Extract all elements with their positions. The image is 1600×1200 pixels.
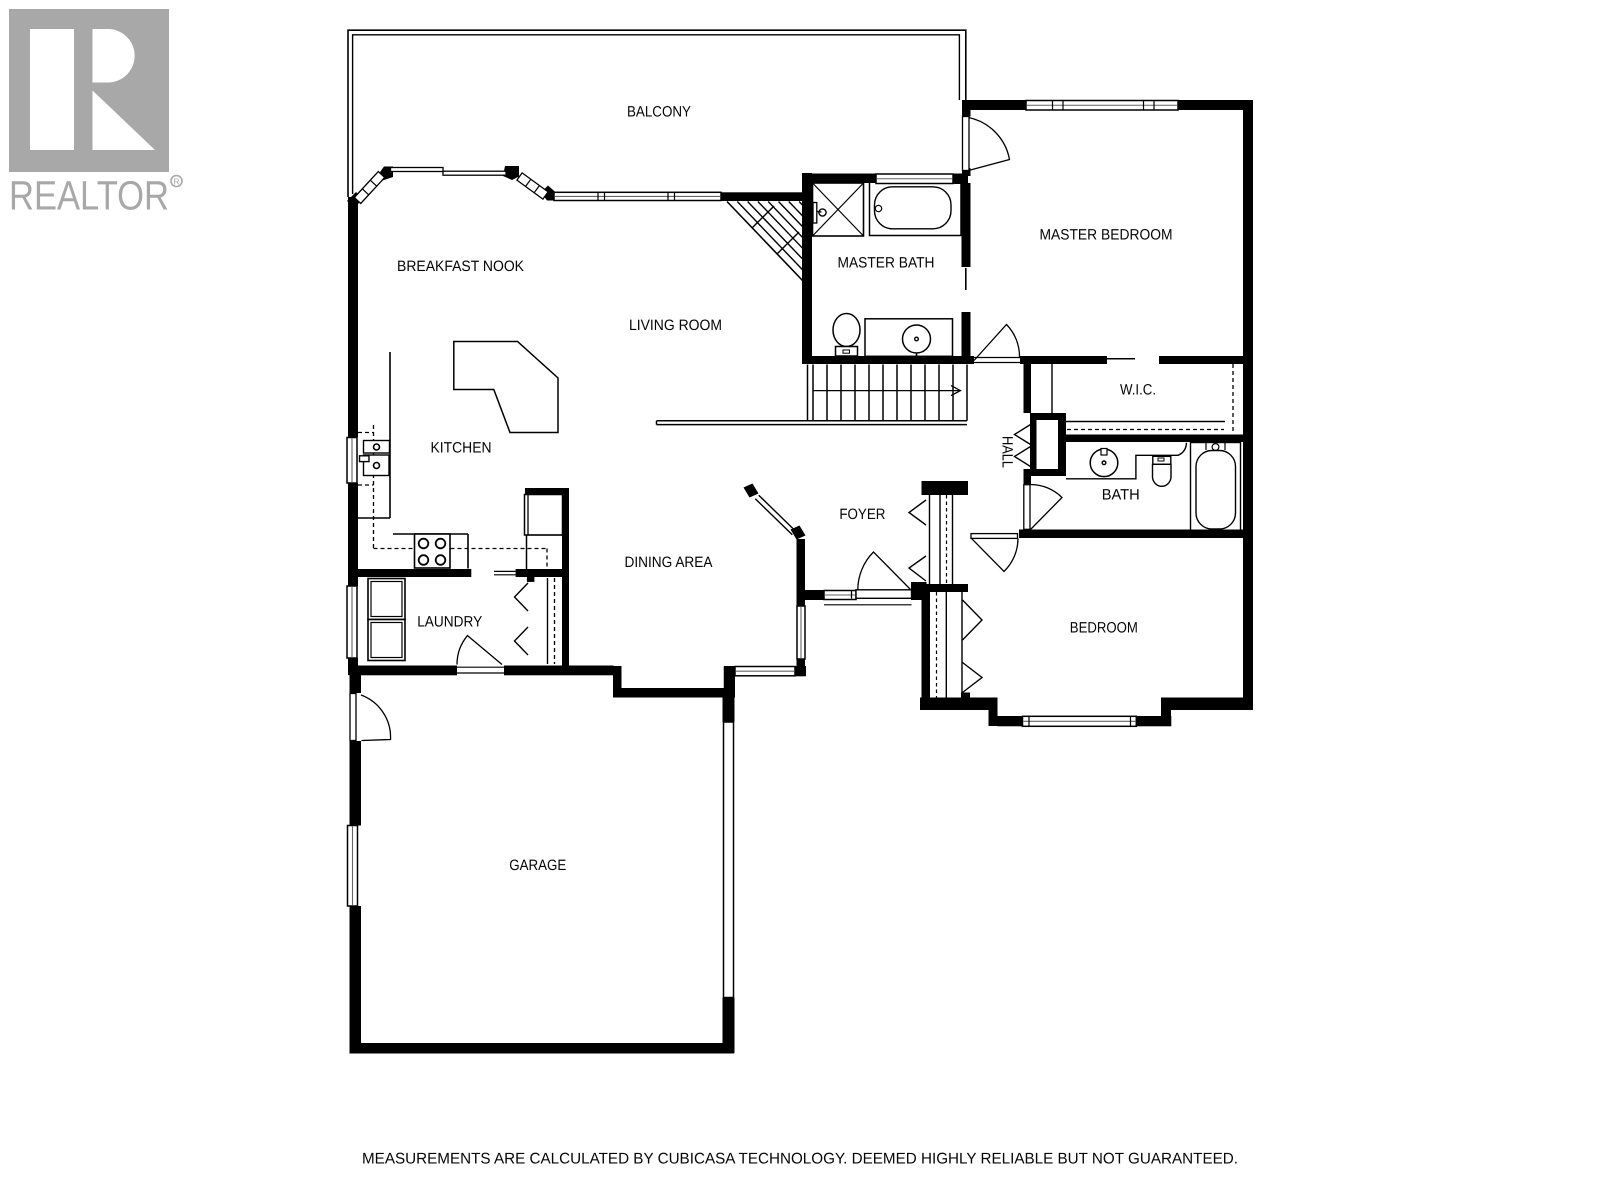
svg-text:MASTER BEDROOM: MASTER BEDROOM [1040,227,1173,244]
svg-text:FOYER: FOYER [839,506,885,523]
svg-text:KITCHEN: KITCHEN [431,440,492,457]
svg-text:BATH: BATH [1102,487,1140,504]
svg-text:W.I.C.: W.I.C. [1120,382,1156,399]
svg-text:HALL: HALL [999,436,1016,468]
svg-text:BALCONY: BALCONY [627,104,691,121]
svg-text:REALTOR: REALTOR [9,173,169,219]
svg-text:GARAGE: GARAGE [509,857,566,874]
svg-text:BEDROOM: BEDROOM [1070,620,1138,637]
svg-text:LAUNDRY: LAUNDRY [417,614,482,631]
svg-text:BREAKFAST NOOK: BREAKFAST NOOK [397,258,524,275]
svg-text:MEASUREMENTS ARE CALCULATED BY: MEASUREMENTS ARE CALCULATED BY CUBICASA … [362,1151,1238,1168]
svg-text:LIVING ROOM: LIVING ROOM [629,317,722,334]
svg-text:DINING AREA: DINING AREA [625,554,713,571]
svg-text:MASTER BATH: MASTER BATH [838,255,935,272]
svg-text:R: R [173,177,179,187]
